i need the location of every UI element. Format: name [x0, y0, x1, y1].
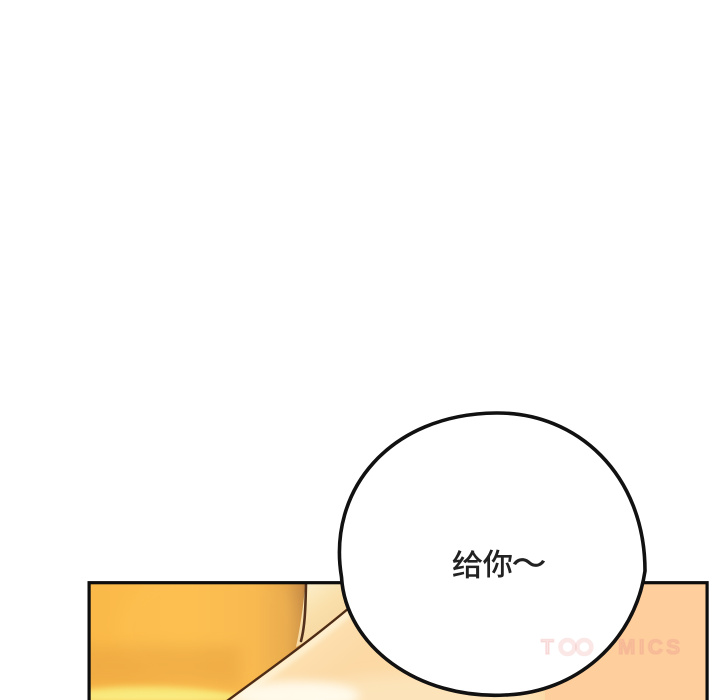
svg-text:T: T	[541, 636, 554, 659]
svg-text:MICS: MICS	[618, 636, 683, 659]
